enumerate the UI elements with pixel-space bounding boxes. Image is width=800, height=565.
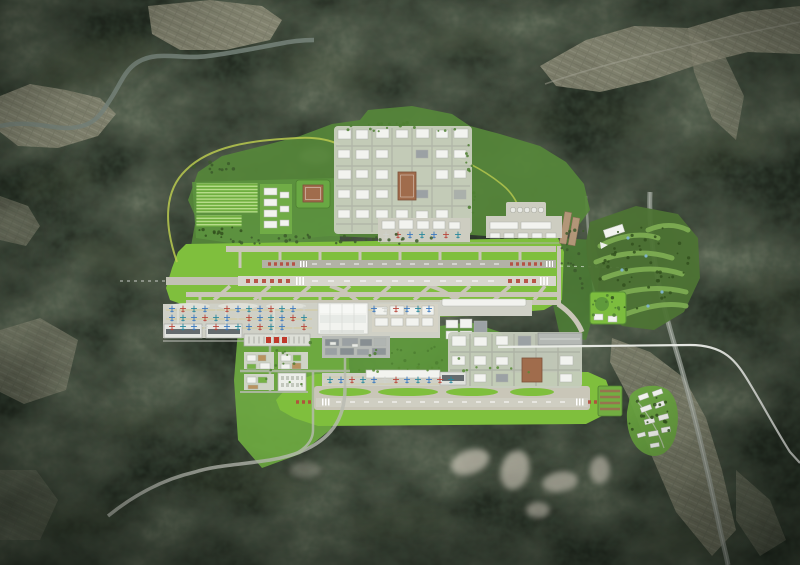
masterplan-svg (0, 0, 800, 565)
aerial-masterplan-image (0, 0, 800, 565)
vignette (0, 0, 800, 565)
overlays (0, 0, 800, 565)
